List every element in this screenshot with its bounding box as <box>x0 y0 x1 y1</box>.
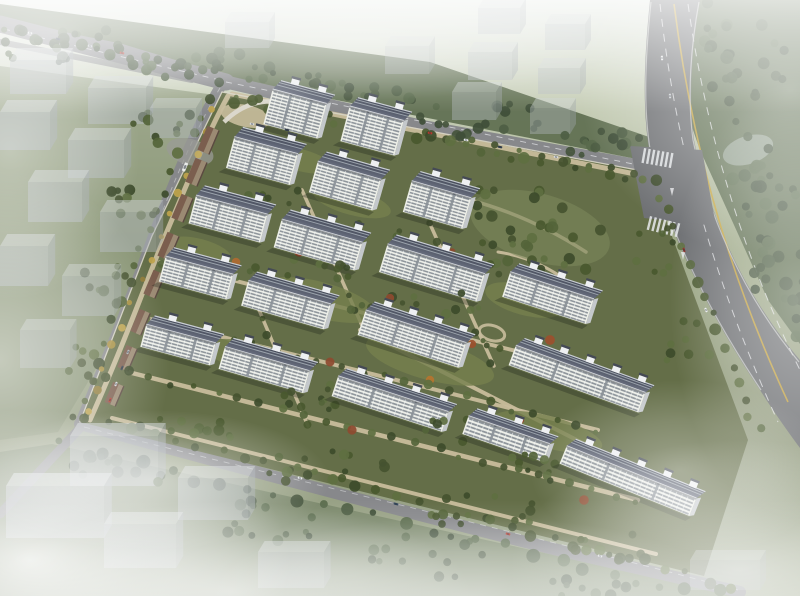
aerial-rendering <box>0 0 800 596</box>
scene-svg <box>0 0 800 596</box>
